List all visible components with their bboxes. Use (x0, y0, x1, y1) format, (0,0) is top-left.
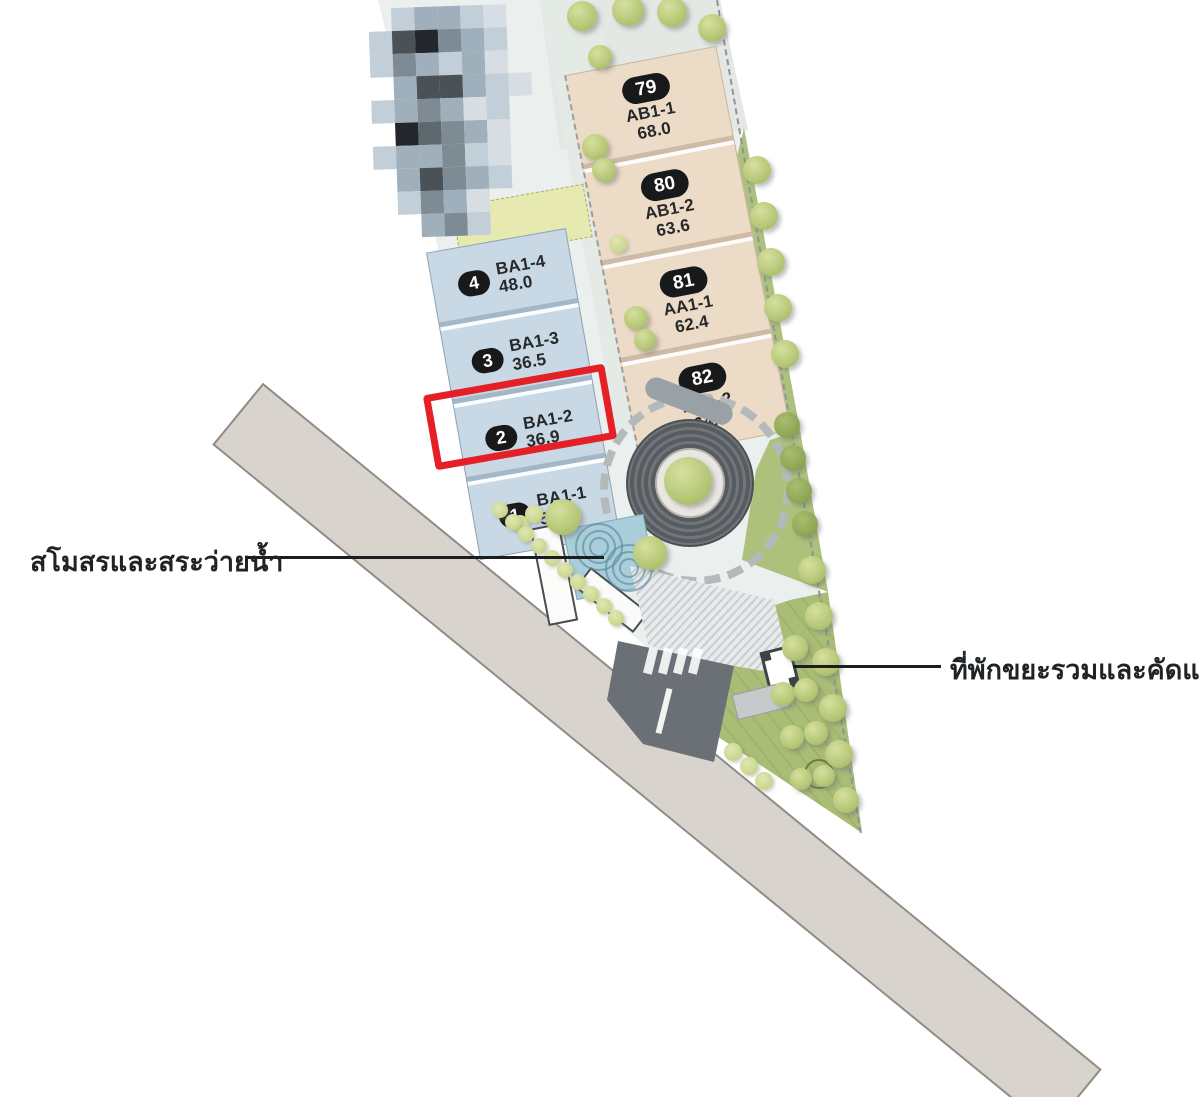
tree-icon (582, 134, 608, 160)
center-tree-icon (664, 457, 712, 505)
bush-icon (755, 772, 773, 790)
tree-icon (634, 329, 656, 351)
tree-icon (764, 294, 792, 322)
label-waste-sorting: ที่พักขยะรวมและคัดแยก (950, 648, 1200, 691)
bush-icon (583, 586, 599, 602)
bush-icon (525, 505, 543, 523)
tree-icon (812, 648, 840, 676)
tree-icon (743, 156, 771, 184)
bush-icon (531, 538, 547, 554)
bush-icon (740, 757, 758, 775)
bush-icon (609, 235, 627, 253)
tree-icon (825, 740, 853, 768)
tree-icon (805, 602, 833, 630)
bush-icon (724, 743, 742, 761)
tree-icon (545, 499, 581, 535)
tree-icon (567, 1, 597, 31)
tree-icon (819, 694, 847, 722)
tree-icon (588, 45, 612, 69)
bush-icon (570, 574, 586, 590)
dark-tree-icon (786, 478, 812, 504)
tree-icon (794, 678, 818, 702)
tree-icon (782, 635, 808, 661)
tree-icon (750, 202, 778, 230)
tree-icon (833, 787, 859, 813)
tree-icon (771, 340, 799, 368)
tree-icon (804, 721, 828, 745)
bush-icon (505, 514, 521, 530)
tree-icon (633, 536, 667, 570)
dark-tree-icon (792, 511, 818, 537)
dark-tree-icon (774, 412, 800, 438)
lot-number-badge: 4 (456, 268, 492, 298)
tree-icon (698, 14, 726, 42)
lot-number-badge: 3 (470, 346, 506, 376)
bush-icon (557, 562, 573, 578)
tree-icon (813, 765, 835, 787)
tree-icon (771, 682, 795, 706)
pixelated-censored-block (368, 3, 537, 238)
tree-icon (592, 158, 616, 182)
tree-icon (624, 306, 648, 330)
leader-line-waste (793, 665, 941, 668)
bush-icon (518, 526, 534, 542)
dark-tree-icon (780, 445, 806, 471)
bush-icon (492, 502, 508, 518)
tree-icon (790, 768, 812, 790)
tree-icon (780, 725, 804, 749)
bush-icon (608, 610, 624, 626)
leader-line-clubhouse (248, 556, 604, 559)
tree-icon (757, 248, 785, 276)
tree-icon (798, 556, 826, 584)
site-plan-canvas: 79 AB1-1 68.0 80 AB1-2 63.6 81 AA1-1 62.… (0, 0, 1200, 1097)
label-clubhouse-pool: สโมสรและสระว่ายน้ำ (30, 540, 283, 583)
